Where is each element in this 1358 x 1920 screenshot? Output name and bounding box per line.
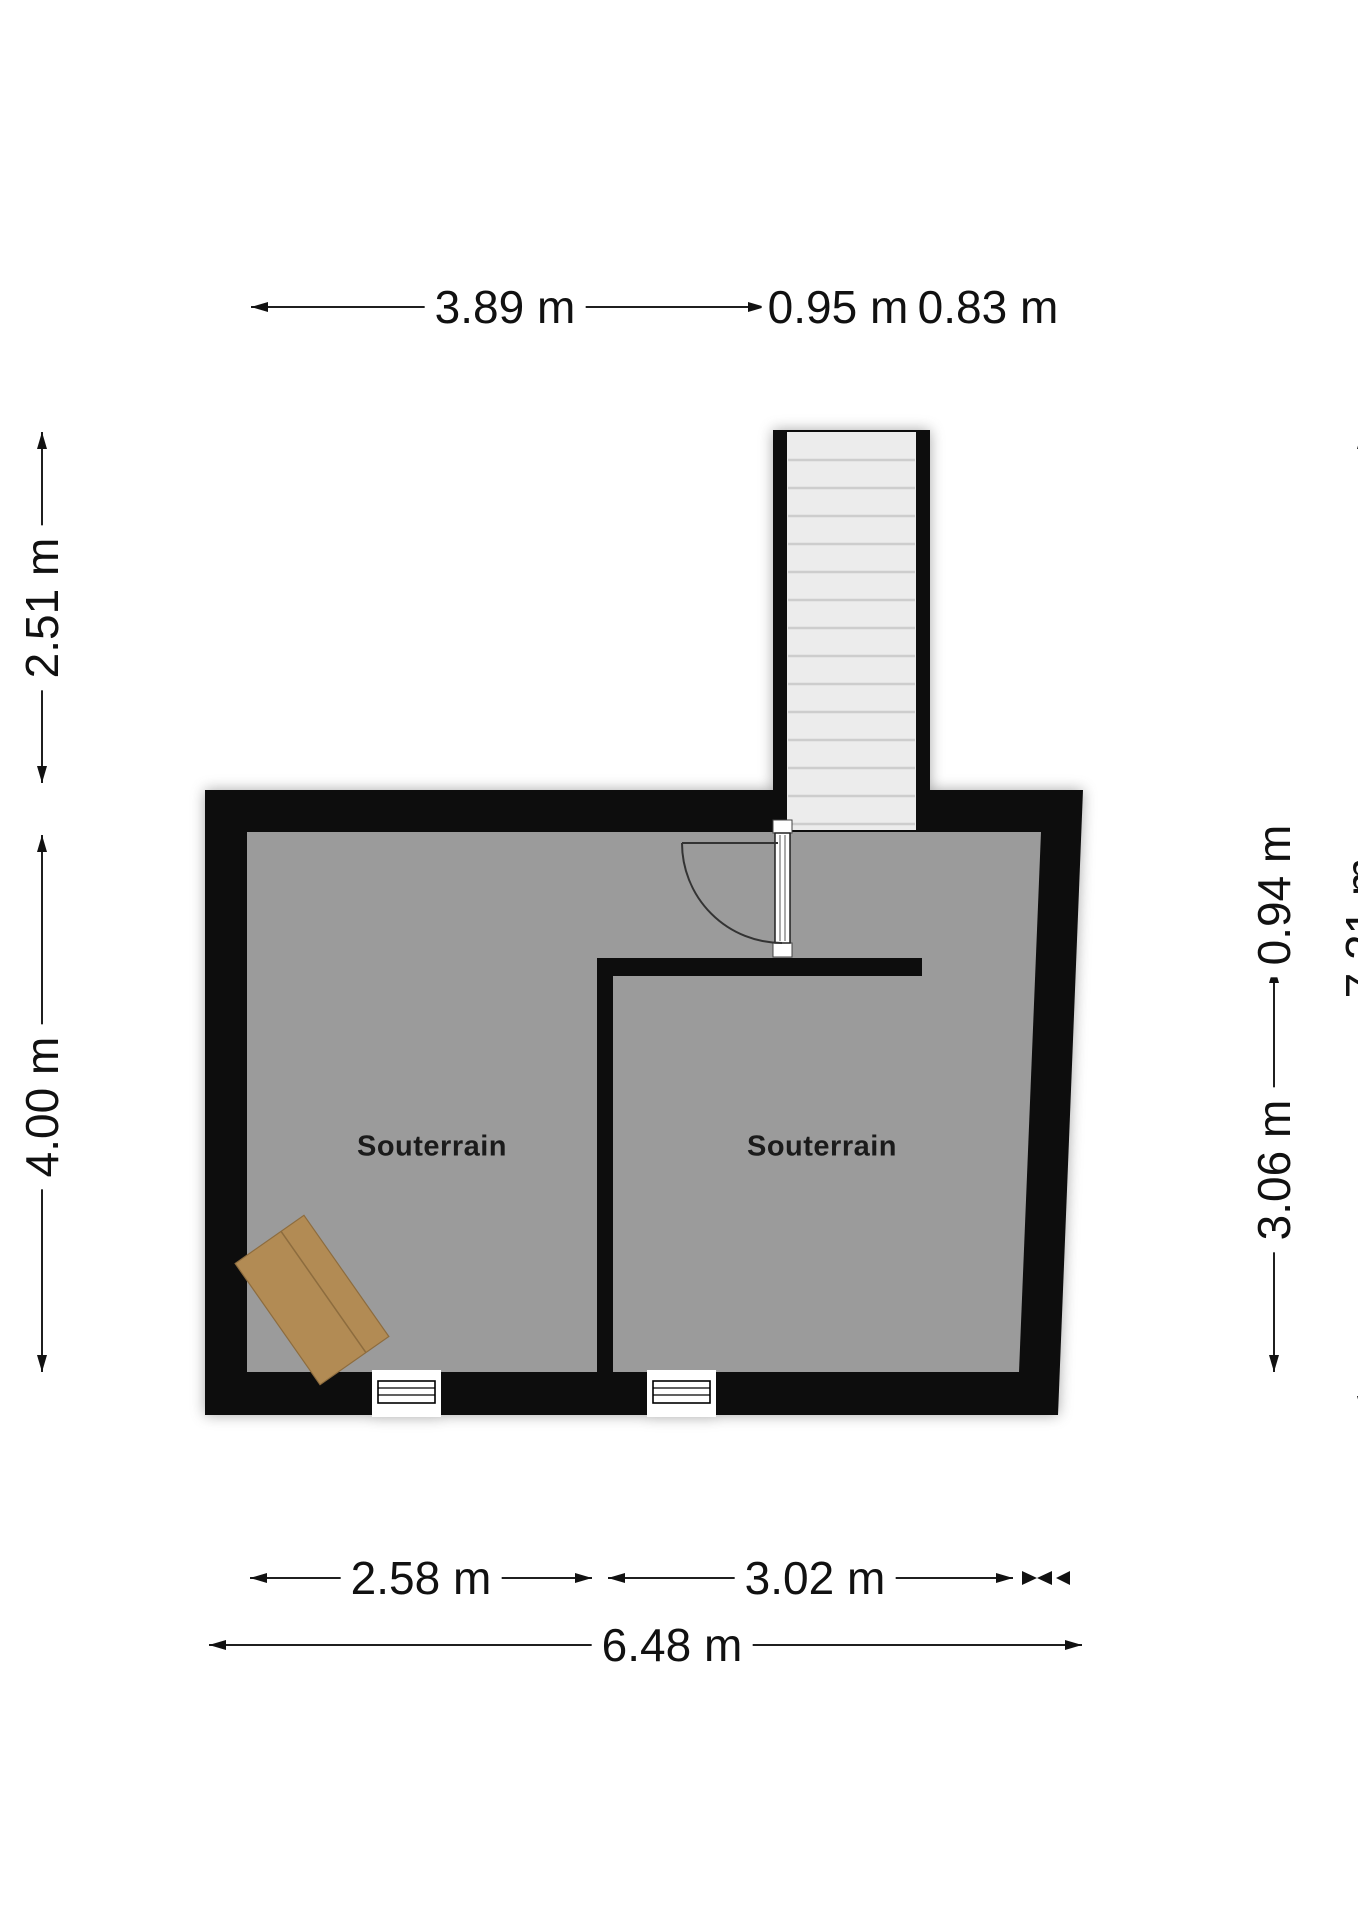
partition-wall-horizontal [597, 958, 922, 976]
staircase [787, 432, 916, 830]
partition-wall-vertical [597, 958, 613, 1372]
floor [247, 832, 1041, 1372]
door-jamb-bottom [773, 943, 792, 957]
window-right [647, 1370, 716, 1417]
door-jamb-top [773, 820, 792, 833]
door-leaf [775, 833, 790, 943]
dim-label-7-21: 7.21 m [1338, 846, 1358, 1011]
dim-label-6-48: 6.48 m [592, 1621, 753, 1669]
window-left [372, 1370, 441, 1417]
dim-label-3-02: 3.02 m [735, 1554, 896, 1602]
stair-treads [787, 432, 916, 830]
dim-label-0-94: 0.94 m [1250, 813, 1298, 978]
dim-label-4-00: 4.00 m [18, 1025, 66, 1190]
dim-label-3-06: 3.06 m [1250, 1088, 1298, 1253]
dim-label-2-58: 2.58 m [341, 1554, 502, 1602]
dim-label-0-95: 0.95 m [762, 283, 915, 331]
dim-label-3-89: 3.89 m [425, 283, 586, 331]
floorplan-page: 3.89 m 0.95 m 0.83 m 2.51 m 4.00 m 0.94 … [0, 0, 1358, 1920]
room-label-souterrain-left: Souterrain [357, 1131, 507, 1164]
room-label-souterrain-right: Souterrain [747, 1131, 897, 1164]
dim-arrow-cluster [1022, 1571, 1070, 1585]
dim-label-2-51: 2.51 m [18, 526, 66, 691]
dim-label-0-83: 0.83 m [912, 283, 1065, 331]
